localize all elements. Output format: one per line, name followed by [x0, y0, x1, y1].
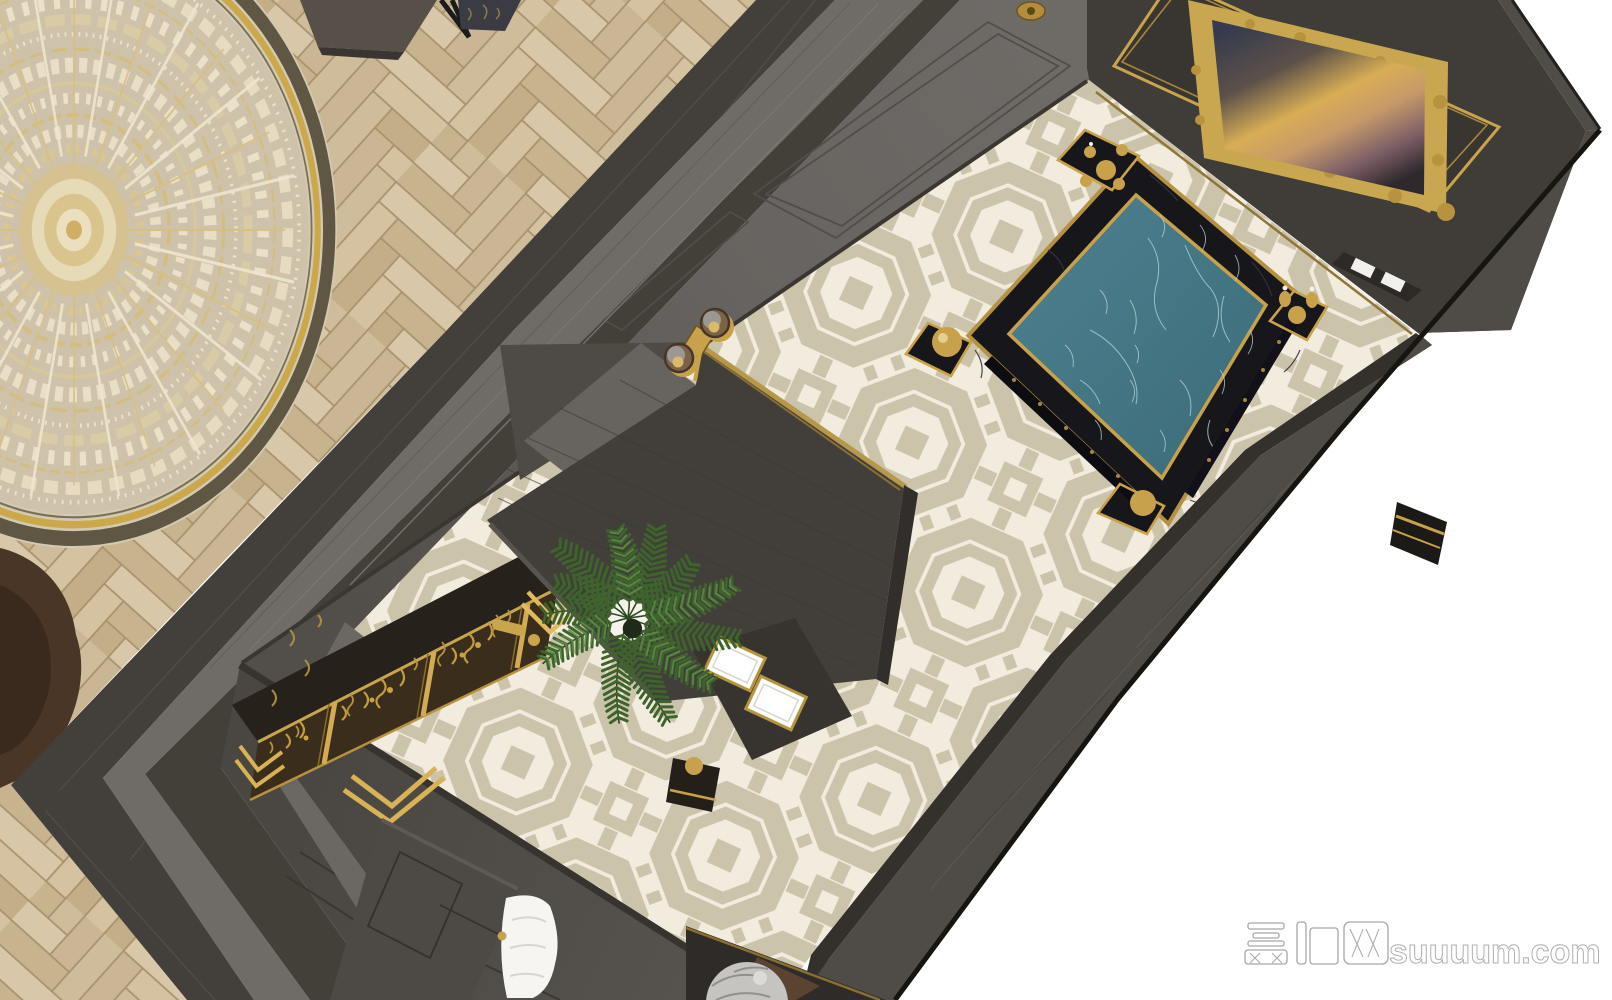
svg-text:suuuum.com: suuuum.com: [1389, 933, 1601, 971]
